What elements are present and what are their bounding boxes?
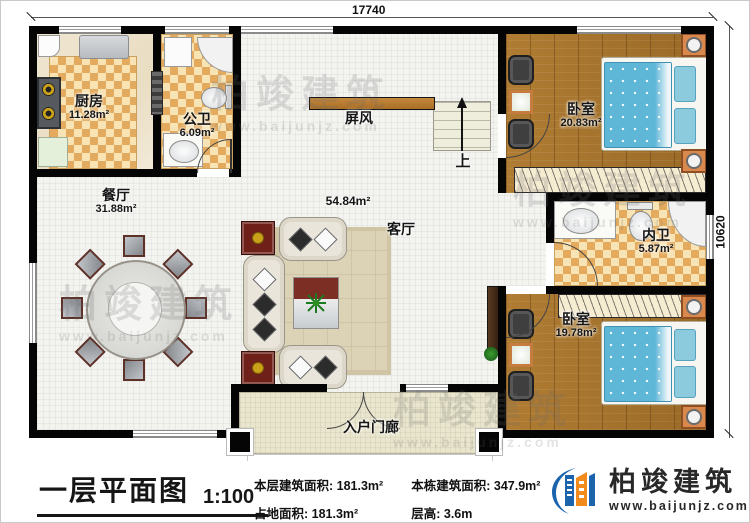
wall [498,286,506,438]
nightstand [681,33,707,57]
stat-total-area: 本栋建筑面积: 347.9m² [411,475,540,494]
room-label-living: 客厅 [387,221,415,237]
kitchen-sliding-door [151,71,163,115]
end-table [241,351,275,385]
stairs-arrow-head [457,97,467,108]
sofa-long [243,255,285,353]
kitchen-corner-cabinet [38,35,60,57]
stairs-up-label: 上 [455,153,470,170]
logo-text: 柏竣建筑 www.baijunjz.com [609,469,749,513]
window [133,430,217,438]
wall [29,169,197,177]
drawing-title-text: 一层平面图 [39,469,189,509]
wardrobe [514,167,706,193]
room-label-public-bath: 公卫6.09m² [180,111,215,140]
logo-website: www.baijunjz.com [609,499,749,513]
door-leaf [230,139,232,173]
room-label-porch: 入户门廊 [343,419,399,435]
wall [497,430,714,438]
screen-label: 屏风 [345,110,373,126]
porch-column [479,432,499,452]
dimension-line-top [31,17,713,18]
stat-floor-area: 本层建筑面积: 181.3m² [254,475,383,494]
stat-floor-height: 层高: 3.6m [411,503,540,522]
window [165,26,229,34]
dining-table-center [108,282,162,336]
inner-sink [563,208,599,234]
dimension-top-label: 17740 [349,3,388,17]
stove-burner [42,107,55,120]
washing-machine [164,37,192,67]
bedroom-hallway-floor [498,193,546,286]
wall [233,34,241,169]
inner-toilet-tank [627,202,653,210]
sofa-bottom [279,345,347,389]
drawing-title: 一层平面图 1:100 [37,469,268,517]
nightstand [681,295,707,319]
drawing-scale: 1:100 [203,486,254,509]
screen-partition [309,97,435,110]
wall [546,286,714,294]
room-label-kitchen: 厨房11.28m² [69,93,109,122]
coffee-table [293,277,339,329]
company-logo: 柏竣建筑 www.baijunjz.com [546,465,749,517]
toilet-bowl [201,87,227,109]
wall [498,34,506,114]
nightstand [681,149,707,173]
room-label-bedroom-top: 卧室20.83m² [561,101,602,130]
porch-column [230,432,250,452]
end-table [241,221,275,255]
bed [601,321,708,405]
wall [231,392,239,430]
window [59,26,121,34]
bath-sink [169,140,199,163]
stat-footprint-area: 占地面积: 181.3m² [254,503,383,522]
kitchen-sink [79,35,129,59]
floor-plan-sheet: 17740 10620 [0,0,750,523]
window [29,263,37,343]
plant-icon [484,347,498,361]
wall [29,26,37,438]
wall [546,193,714,201]
dining-set [12,186,256,430]
wall [498,158,506,193]
dining-chair [123,235,145,257]
title-block: 一层平面图 1:100 本层建筑面积: 181.3m² 本栋建筑面积: 347.… [1,461,750,523]
bed [601,57,708,151]
light-box [509,90,533,114]
dresser [508,371,534,401]
dining-chair [185,297,207,319]
dimension-right-label: 10620 [714,212,728,251]
window [706,215,714,259]
window [577,26,681,34]
room-label-inner-bath: 内卫5.87m² [639,227,674,256]
sofa-top [279,217,347,261]
kitchen-fridge [38,137,68,167]
dresser [508,55,534,85]
room-label-dining: 餐厅31.88m² [96,187,137,216]
logo-company-name: 柏竣建筑 [609,469,749,496]
window [241,26,333,34]
light-box [509,343,533,367]
wall [231,384,327,392]
room-label-bedroom-bottom: 卧室19.78m² [556,311,597,340]
wall [546,193,554,243]
dining-chair [123,359,145,381]
area-stats: 本层建筑面积: 181.3m² 本栋建筑面积: 347.9m² 占地面积: 18… [254,475,540,522]
stairs-arrow [461,107,463,151]
logo-building-icon [546,465,602,517]
window [406,384,448,392]
dining-chair [61,297,83,319]
nightstand [681,405,707,429]
stove-burner [42,83,55,96]
dimension-line-right [729,26,730,438]
plant-icon [305,292,327,314]
living-area-label: 54.84m² [326,195,371,209]
